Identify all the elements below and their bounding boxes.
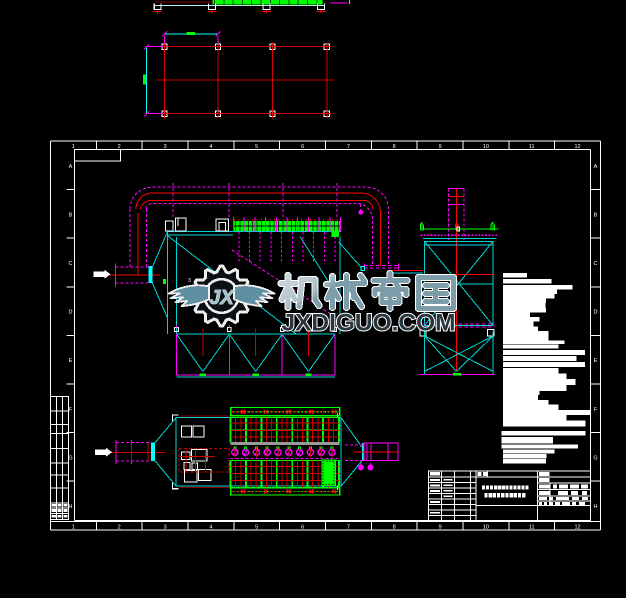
svg-text:E: E <box>594 358 598 364</box>
svg-text:12: 12 <box>574 525 580 531</box>
svg-text:12: 12 <box>574 144 580 150</box>
svg-text:E: E <box>69 358 73 364</box>
svg-text:JX: JX <box>209 287 235 309</box>
svg-text:11: 11 <box>529 144 535 150</box>
svg-text:1: 1 <box>72 525 75 531</box>
svg-text:G: G <box>593 455 597 461</box>
svg-text:10: 10 <box>483 525 489 531</box>
svg-text:7: 7 <box>347 525 350 531</box>
svg-text:JXDIGUO.COM: JXDIGUO.COM <box>282 310 456 337</box>
svg-text:6: 6 <box>301 525 304 531</box>
svg-text:7: 7 <box>347 144 350 150</box>
svg-text:10: 10 <box>483 144 489 150</box>
svg-text:H: H <box>594 504 598 510</box>
svg-text:3: 3 <box>188 278 191 284</box>
svg-text:8: 8 <box>393 144 396 150</box>
svg-text:6: 6 <box>301 144 304 150</box>
svg-text:9: 9 <box>439 525 442 531</box>
svg-text:C: C <box>69 261 73 267</box>
svg-text:B: B <box>69 212 73 218</box>
svg-text:8: 8 <box>393 525 396 531</box>
svg-text:B: B <box>594 212 598 218</box>
svg-text:D: D <box>594 310 598 316</box>
svg-text:A: A <box>594 164 598 170</box>
svg-text:D: D <box>69 310 73 316</box>
svg-text:5: 5 <box>255 525 258 531</box>
svg-text:5: 5 <box>255 144 258 150</box>
svg-text:4: 4 <box>209 144 212 150</box>
svg-text:A: A <box>69 164 73 170</box>
svg-text:3: 3 <box>164 144 167 150</box>
svg-text:11: 11 <box>529 525 535 531</box>
svg-text:9: 9 <box>439 144 442 150</box>
svg-text:H: H <box>69 504 73 510</box>
svg-text:C: C <box>594 261 598 267</box>
svg-text:2: 2 <box>118 525 121 531</box>
svg-text:4: 4 <box>209 525 212 531</box>
svg-text:3: 3 <box>164 525 167 531</box>
